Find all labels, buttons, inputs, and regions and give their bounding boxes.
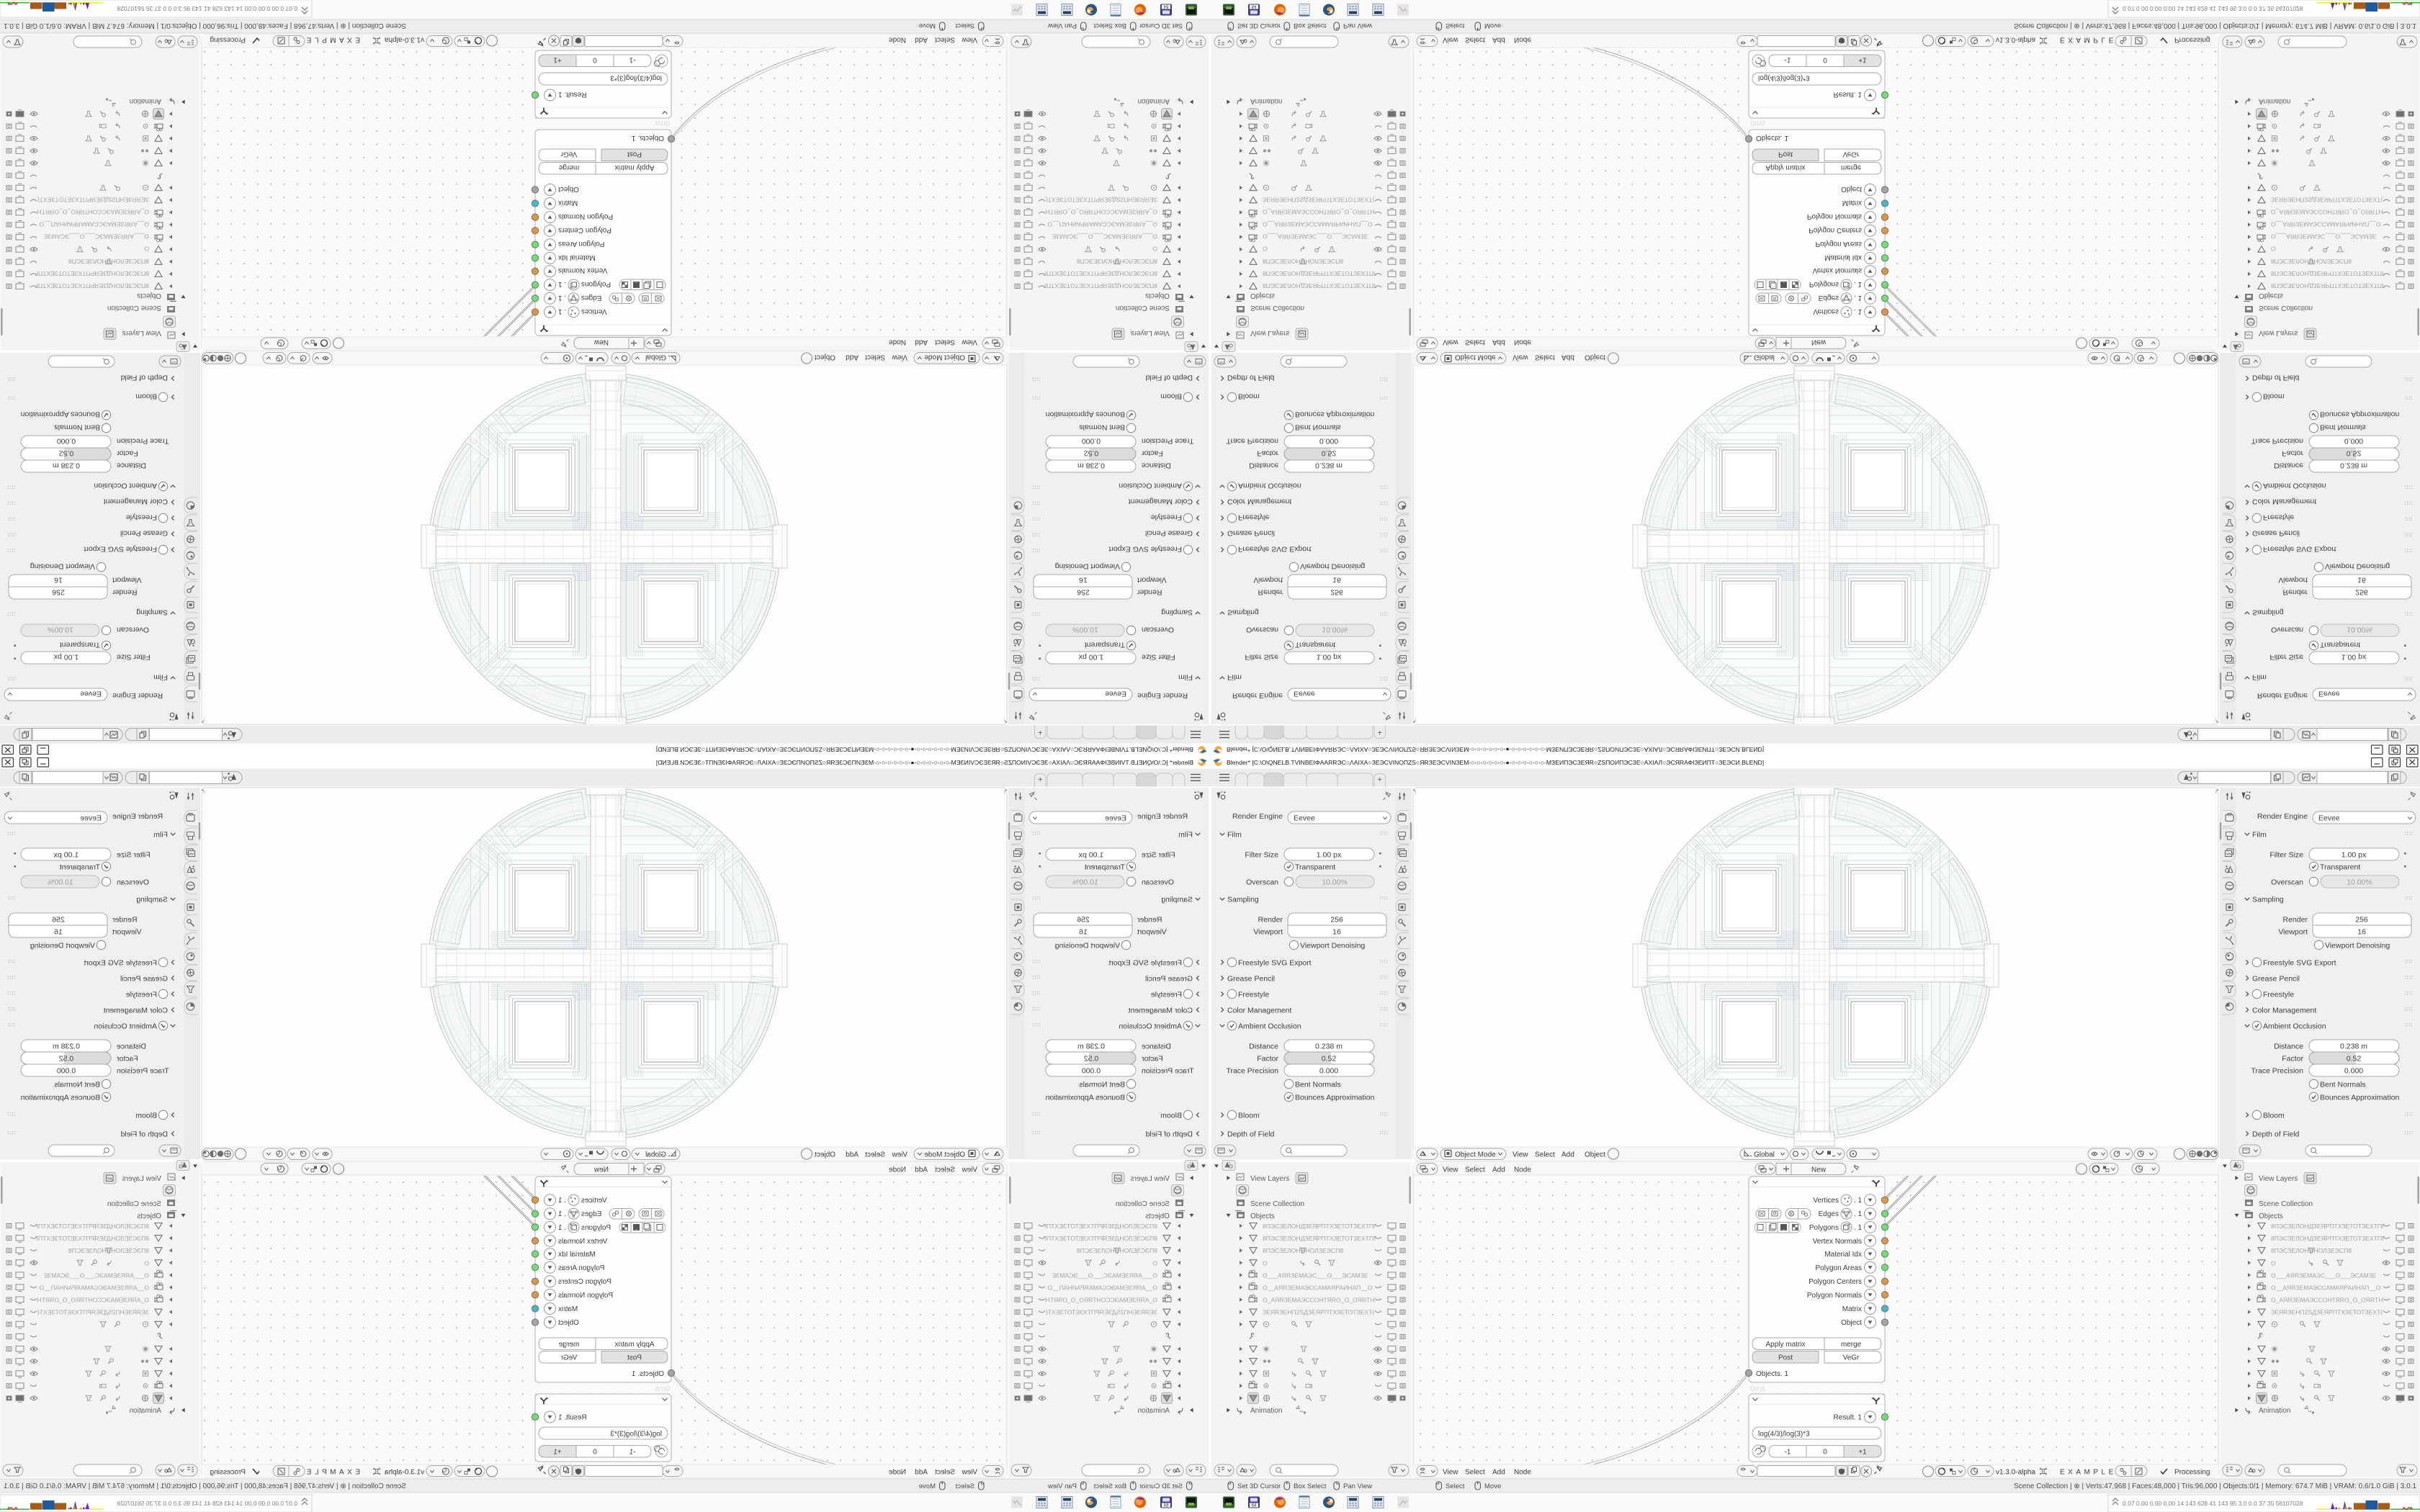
svg-text:Vertices: Vertices [1813, 1197, 1839, 1205]
svg-text:Overscan: Overscan [1246, 878, 1278, 887]
svg-text:. 1: . 1 [1854, 1210, 1863, 1218]
svg-text:0ms: 0ms [1750, 1385, 1765, 1393]
svg-text:0.07 0.00 0.00 0.00 14 143: 0.07 0.00 0.00 0.00 14 143 628 41 143 95… [2123, 1500, 2303, 1507]
svg-text:Processing: Processing [2174, 1469, 2210, 1477]
svg-text:Distance: Distance [1249, 1043, 1278, 1051]
svg-text:v1.3.0-alpha: v1.3.0-alpha [1996, 1469, 2035, 1477]
svg-text:Bent Normals: Bent Normals [1295, 1081, 1341, 1089]
svg-text:O: O [1263, 1259, 1268, 1266]
svg-text:Edges: Edges [1819, 1210, 1839, 1218]
svg-text:Bounces Approximation: Bounces Approximation [1295, 1094, 1374, 1102]
svg-text:0.000: 0.000 [1319, 1067, 1338, 1076]
svg-text:Pan View: Pan View [1343, 1482, 1372, 1490]
svg-text:O___AЯRЗЕМАЭС___O___ЭСАМЗЕ: O___AЯRЗЕМАЭС___O___ЭСАМЗЕ [1263, 1272, 1368, 1279]
svg-text:ЗЕЯRЗЕНП2SДЗЕЯРПТХЗЕТОТЗЕХТ(: ЗЕЯRЗЕНП2SДЗЕЯРПТХЗЕТОТЗЕХТ( [1263, 1309, 1374, 1316]
svg-text:Sampling: Sampling [1227, 896, 1259, 904]
svg-text:16: 16 [1332, 928, 1341, 937]
svg-text:Vertex Normals: Vertex Normals [1813, 1238, 1862, 1246]
svg-text:Viewport: Viewport [1253, 928, 1283, 937]
svg-text:merge: merge [1841, 1341, 1862, 1349]
svg-text:Node: Node [1514, 1166, 1531, 1174]
svg-text:Color Management: Color Management [1227, 1007, 1291, 1015]
svg-text:Trace Precision: Trace Precision [1226, 1067, 1278, 1076]
svg-text:VeGr: VeGr [1843, 1354, 1860, 1362]
svg-text:Select: Select [1446, 1482, 1465, 1490]
svg-text:Grease Pencil: Grease Pencil [1227, 975, 1275, 984]
svg-text:+1: +1 [1858, 1449, 1867, 1457]
svg-text:Polygon Centers: Polygon Centers [1809, 1278, 1862, 1286]
svg-text:Blender* [C:\O\QNELB.TVINBEIΦA: Blender* [C:\O\QNELB.TVINBEIΦAARRЭC○ΛAIX… [1227, 759, 1764, 766]
svg-text:. 1: . 1 [1854, 1197, 1863, 1205]
svg-text:Polygon Areas: Polygon Areas [1816, 1264, 1863, 1272]
svg-text:View: View [1512, 1151, 1528, 1159]
svg-text:Select: Select [1535, 1151, 1555, 1159]
svg-text:0: 0 [1823, 1449, 1827, 1457]
svg-text:Node: Node [1514, 1469, 1531, 1477]
svg-text:Factor: Factor [1257, 1055, 1278, 1063]
svg-text:0.52: 0.52 [1322, 1055, 1337, 1063]
svg-text:Object: Object [1585, 1151, 1605, 1159]
svg-text:Polygons: Polygons [1809, 1224, 1839, 1232]
svg-text:Freestyle: Freestyle [1238, 991, 1269, 999]
svg-text:O_AЯRЗЕМАЭССОНТЯRO_O_OЯRТН: O_AЯRЗЕМАЭССОНТЯRO_O_OЯRТН [1263, 1297, 1374, 1304]
svg-text:View: View [1443, 1166, 1458, 1174]
svg-text:Viewport Denoising: Viewport Denoising [1300, 942, 1365, 950]
svg-text:Render: Render [1258, 916, 1283, 924]
svg-text:Bloom: Bloom [1238, 1112, 1260, 1120]
svg-text:Global: Global [1754, 1151, 1775, 1159]
svg-text:Transparent: Transparent [1295, 863, 1335, 872]
svg-text:Matrix: Matrix [1842, 1305, 1862, 1313]
svg-text:Object Mode: Object Mode [1455, 1151, 1496, 1159]
svg-text:Object: Object [1841, 1319, 1862, 1327]
svg-text:-1: -1 [1785, 1449, 1791, 1457]
svg-text:Eevee: Eevee [1294, 814, 1315, 823]
svg-text:Ambient Occlusion: Ambient Occlusion [1238, 1022, 1301, 1031]
svg-text:Material Idx: Material Idx [1824, 1251, 1862, 1259]
svg-text:Add: Add [1492, 1166, 1505, 1174]
svg-text:Add: Add [1492, 1469, 1505, 1477]
svg-text:Add: Add [1561, 1151, 1574, 1159]
svg-text:Filter Size: Filter Size [1245, 851, 1278, 860]
svg-text:Post: Post [1778, 1354, 1793, 1362]
svg-text:8ПЭСЗЕЛОНДЗЕЯРПТХЗЕТОТЗЕХТПГ: 8ПЭСЗЕЛОНДЗЕЯРПТХЗЕТОТЗЕХТПГ [1263, 1223, 1377, 1230]
svg-text:Objects. 1: Objects. 1 [1756, 1370, 1788, 1378]
svg-text:10.00%: 10.00% [1322, 878, 1348, 887]
svg-text:1.00 px: 1.00 px [1317, 851, 1342, 860]
svg-text:O__AЯRЗЕМАЭССАМАЯРАИНАП__O: O__AЯRЗЕМАЭССАМАЯРАИНАП__O [1263, 1284, 1373, 1292]
svg-text:Polygon Normals: Polygon Normals [1807, 1292, 1862, 1300]
svg-text:. 1: . 1 [1854, 1224, 1863, 1232]
svg-text:View: View [1443, 1469, 1458, 1477]
svg-text:Box Select: Box Select [1294, 1482, 1327, 1490]
svg-text:256: 256 [1330, 916, 1343, 924]
svg-text:log(4/3)/log(3)*3: log(4/3)/log(3)*3 [1758, 1431, 1810, 1439]
svg-text:View Layers: View Layers [1250, 1175, 1289, 1183]
svg-text:0.238 m: 0.238 m [1315, 1043, 1343, 1051]
svg-text:Scene Collection | ⊕ | Ver: Scene Collection | ⊕ | Verts:47,968 | Fa… [2014, 1482, 2416, 1490]
svg-text:Scene Collection: Scene Collection [1250, 1200, 1304, 1208]
svg-text:Objects: Objects [1250, 1212, 1275, 1220]
svg-text:Move: Move [1484, 1482, 1501, 1490]
svg-text:Render Engine: Render Engine [1232, 812, 1283, 821]
svg-text:8ПЭСЗЕЛОНДЗЕЯРПТХЗЕТОТЗЕХТПГ: 8ПЭСЗЕЛОНДЗЕЯРПТХЗЕТОТЗЕХТПГ [1263, 1235, 1377, 1242]
svg-text:Select: Select [1465, 1469, 1485, 1477]
svg-text:Select: Select [1465, 1166, 1485, 1174]
svg-text:Set 3D Cursor: Set 3D Cursor [1237, 1482, 1281, 1490]
svg-text:EXAMPLES: EXAMPLES [2060, 1469, 2125, 1477]
svg-text:+: + [1377, 775, 1381, 784]
svg-text:Animation: Animation [1250, 1407, 1282, 1415]
svg-text:Freestyle SVG Export: Freestyle SVG Export [1238, 959, 1312, 968]
svg-text:Apply matrix: Apply matrix [1765, 1341, 1805, 1349]
svg-text:Depth of Field: Depth of Field [1227, 1130, 1275, 1139]
svg-text:Film: Film [1227, 831, 1242, 840]
svg-text:Result. 1: Result. 1 [1834, 1414, 1863, 1422]
svg-text:New: New [1811, 1166, 1827, 1174]
svg-text:64: 64 [1252, 1504, 1257, 1508]
